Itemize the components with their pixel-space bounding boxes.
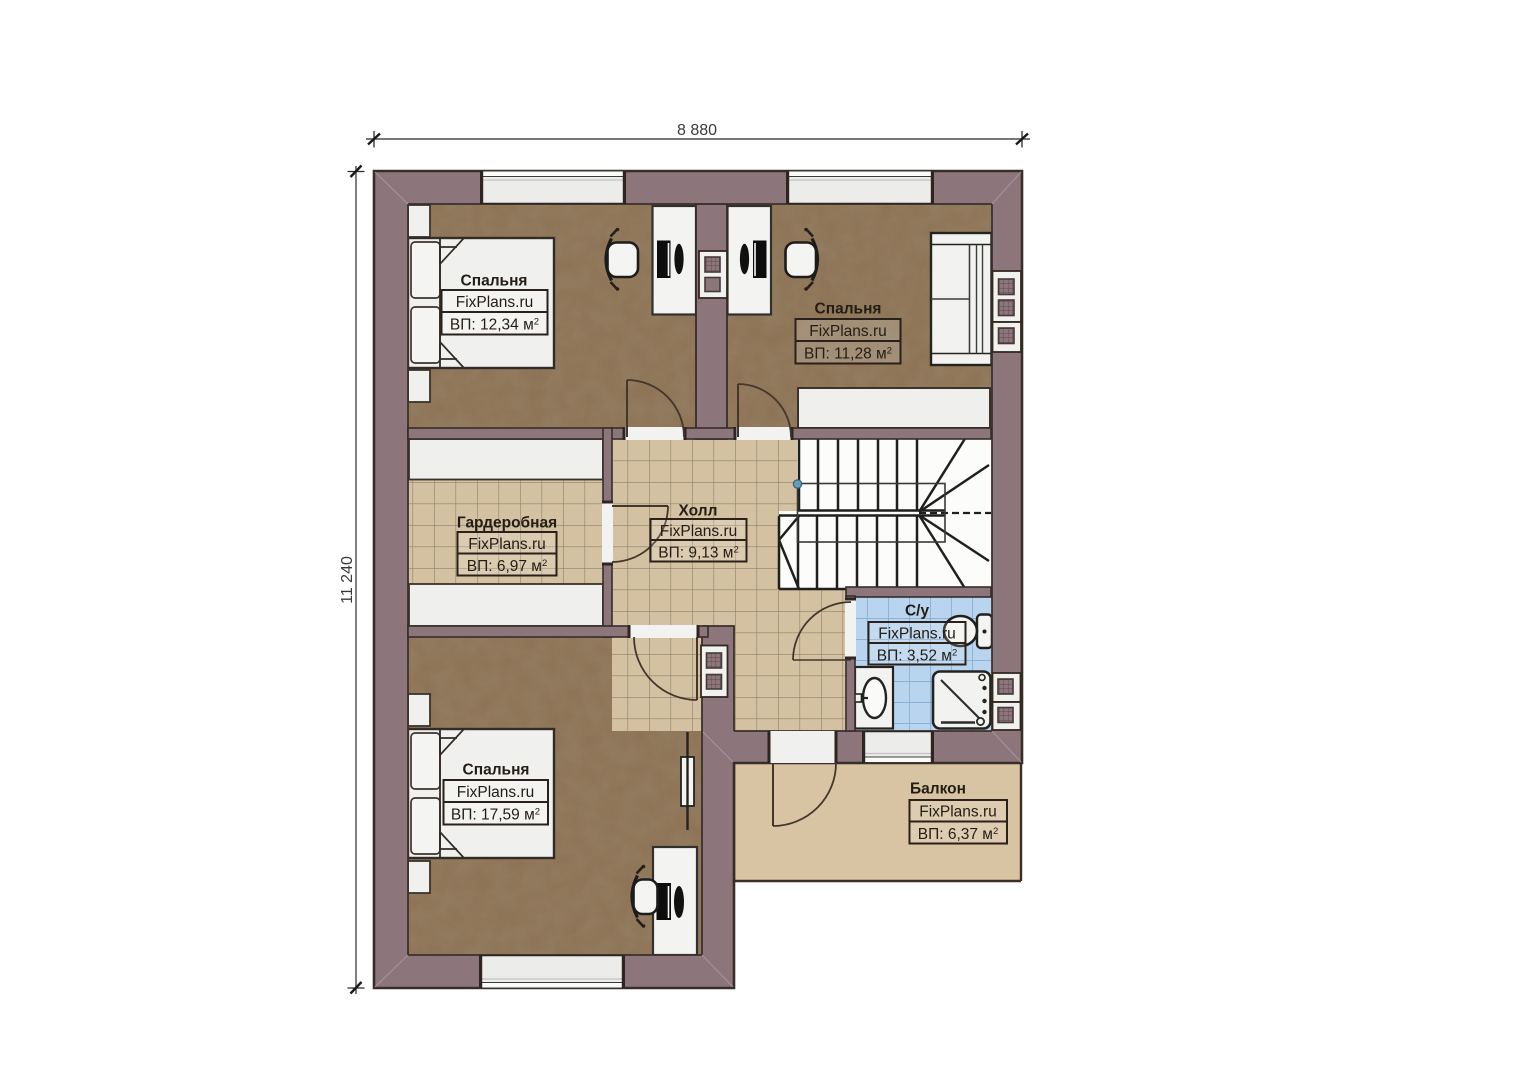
svg-text:FixPlans.ru: FixPlans.ru — [878, 626, 956, 643]
svg-text:С/у: С/у — [905, 603, 930, 620]
svg-text:FixPlans.ru: FixPlans.ru — [809, 323, 887, 340]
svg-text:Спальня: Спальня — [815, 301, 882, 318]
svg-text:FixPlans.ru: FixPlans.ru — [660, 523, 738, 540]
svg-text:8 880: 8 880 — [677, 122, 717, 139]
svg-text:Спальня: Спальня — [463, 762, 530, 779]
svg-text:11 240: 11 240 — [339, 556, 356, 604]
svg-text:ВП: 11,28 м2: ВП: 11,28 м2 — [804, 346, 892, 363]
svg-text:Гардеробная: Гардеробная — [457, 515, 557, 532]
svg-text:ВП: 6,37 м2: ВП: 6,37 м2 — [918, 826, 999, 843]
svg-text:ВП: 6,97 м2: ВП: 6,97 м2 — [467, 558, 548, 575]
svg-text:FixPlans.ru: FixPlans.ru — [919, 804, 997, 821]
svg-text:FixPlans.ru: FixPlans.ru — [456, 294, 534, 311]
svg-text:ВП: 12,34 м2: ВП: 12,34 м2 — [450, 317, 539, 334]
svg-text:ВП: 3,52 м2: ВП: 3,52 м2 — [877, 648, 958, 665]
svg-text:FixPlans.ru: FixPlans.ru — [468, 536, 546, 553]
svg-text:Холл: Холл — [679, 503, 718, 520]
svg-text:ВП: 17,59 м2: ВП: 17,59 м2 — [451, 807, 540, 824]
svg-text:Спальня: Спальня — [461, 273, 528, 290]
svg-text:ВП: 9,13 м2: ВП: 9,13 м2 — [658, 545, 739, 562]
svg-text:FixPlans.ru: FixPlans.ru — [457, 784, 535, 801]
svg-text:Балкон: Балкон — [910, 781, 966, 798]
